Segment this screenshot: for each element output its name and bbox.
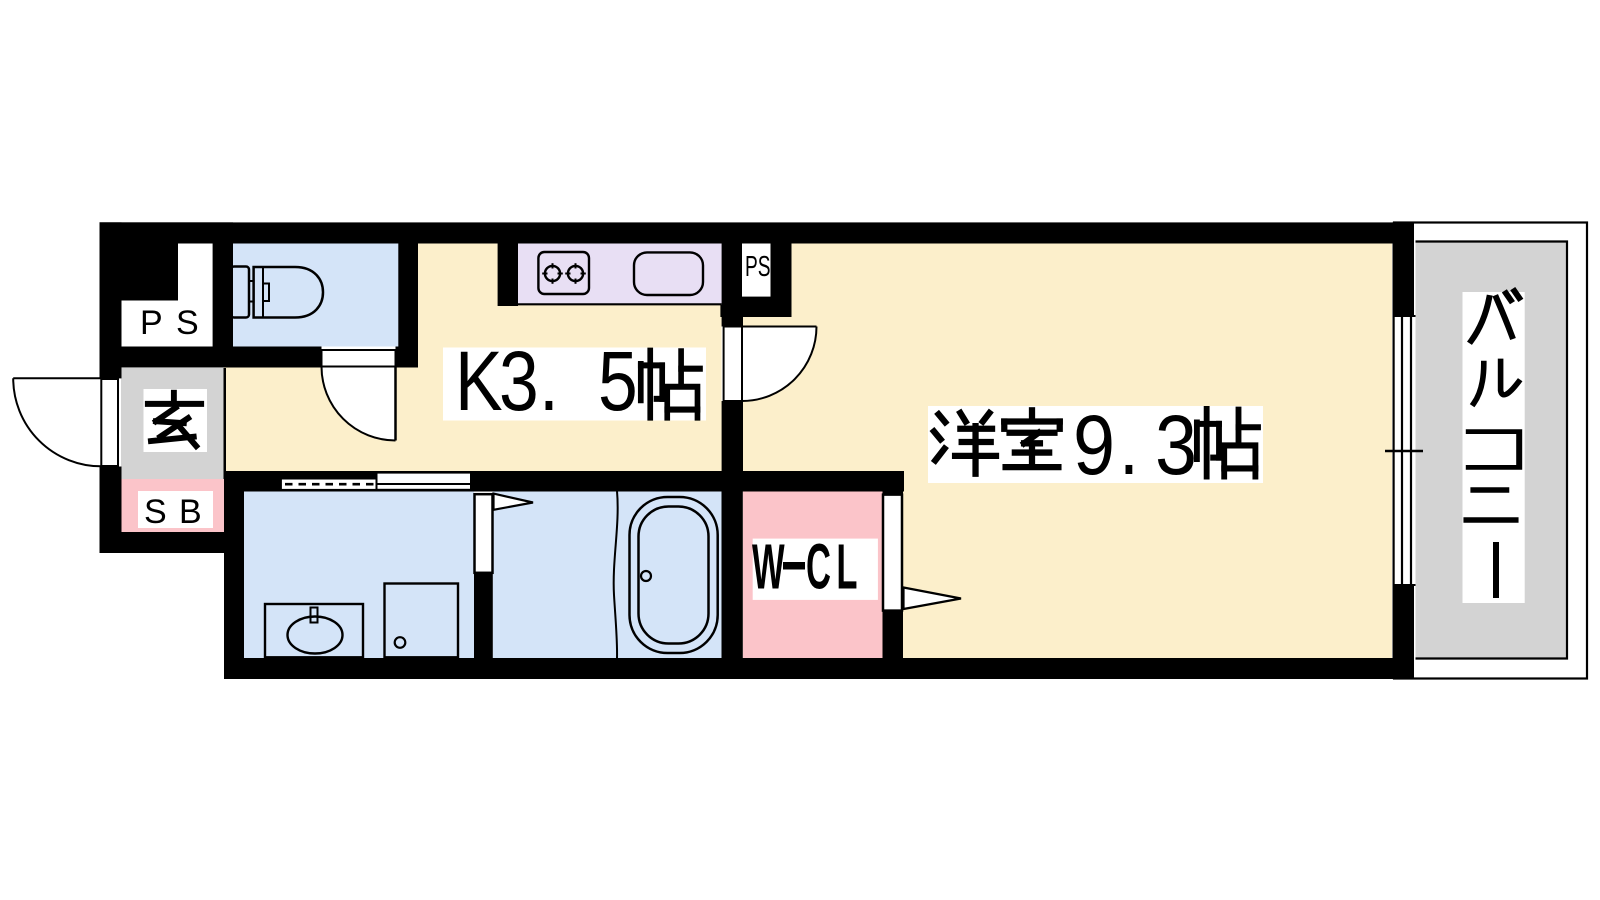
svg-text:S: S: [144, 493, 167, 531]
svg-text:PS: PS: [745, 251, 771, 283]
svg-text:.: .: [539, 333, 559, 428]
svg-text:CL: CL: [806, 530, 863, 602]
svg-text:B: B: [179, 493, 202, 531]
svg-text:5: 5: [598, 333, 638, 428]
svg-text:3: 3: [499, 333, 539, 428]
svg-text:S: S: [176, 304, 199, 342]
svg-text:K: K: [455, 333, 503, 428]
svg-text:P: P: [140, 304, 163, 342]
svg-text:3: 3: [1155, 398, 1197, 492]
svg-text:W: W: [752, 530, 785, 602]
svg-text:.: .: [1119, 397, 1139, 492]
svg-text:9: 9: [1073, 398, 1115, 492]
